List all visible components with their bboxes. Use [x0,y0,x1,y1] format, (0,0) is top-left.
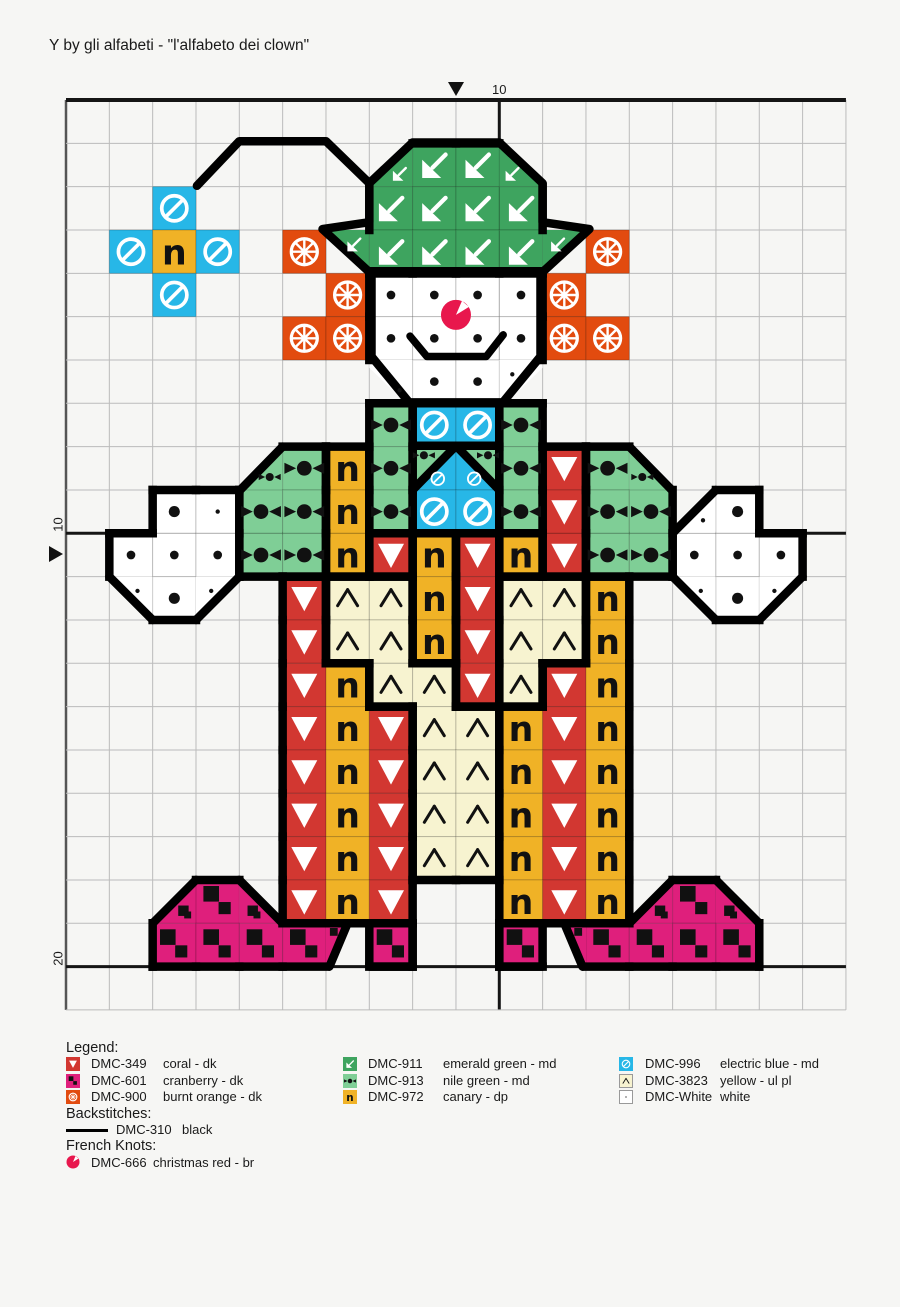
legend-color-name: burnt orange - dk [163,1089,262,1104]
legend-color-name: emerald green - md [443,1056,556,1071]
legend-color-name: nile green - md [443,1073,530,1088]
backstitch-code: DMC-310 [116,1122,172,1137]
legend-color-name: electric blue - md [720,1056,819,1071]
legend-swatch-DMC-601 [66,1074,79,1087]
legend-code: DMC-913 [368,1073,424,1088]
backstitch-name: black [182,1122,212,1137]
legend-swatch-DMC-900 [66,1090,79,1103]
legend: Legend: Backstitches: DMC-310 black Fren… [0,0,900,1307]
french-knot-name: christmas red - br [153,1155,254,1170]
legend-swatch-DMC-996 [619,1057,632,1070]
legend-color-name: white [720,1089,750,1104]
french-knot-code: DMC-666 [91,1155,147,1170]
legend-code: DMC-911 [368,1056,423,1071]
legend-code: DMC-972 [368,1089,424,1104]
legend-swatch-DMC-White [619,1090,632,1103]
legend-swatch-DMC-3823 [619,1074,632,1087]
svg-text:n: n [346,1092,353,1104]
legend-color-name: canary - dp [443,1089,508,1104]
legend-code: DMC-900 [91,1089,147,1104]
legend-code: DMC-996 [645,1056,701,1071]
legend-heading: Legend: [66,1040,118,1056]
legend-swatch-DMC-913 [343,1074,356,1087]
legend-code: DMC-349 [91,1056,147,1071]
french-knot-icon [66,1155,81,1170]
backstitch-line-swatch [66,1129,108,1132]
legend-code: DMC-3823 [645,1073,708,1088]
french-knots-heading: French Knots: [66,1138,156,1154]
backstitches-heading: Backstitches: [66,1106,151,1122]
legend-swatch-DMC-911 [343,1057,356,1070]
legend-color-name: cranberry - dk [163,1073,243,1088]
legend-color-name: coral - dk [163,1056,216,1071]
legend-swatch-DMC-349 [66,1057,79,1070]
legend-code: DMC-601 [91,1073,147,1088]
legend-color-name: yellow - ul pl [720,1073,792,1088]
legend-code: DMC-White [645,1089,712,1104]
legend-swatch-DMC-972: n [343,1090,356,1103]
